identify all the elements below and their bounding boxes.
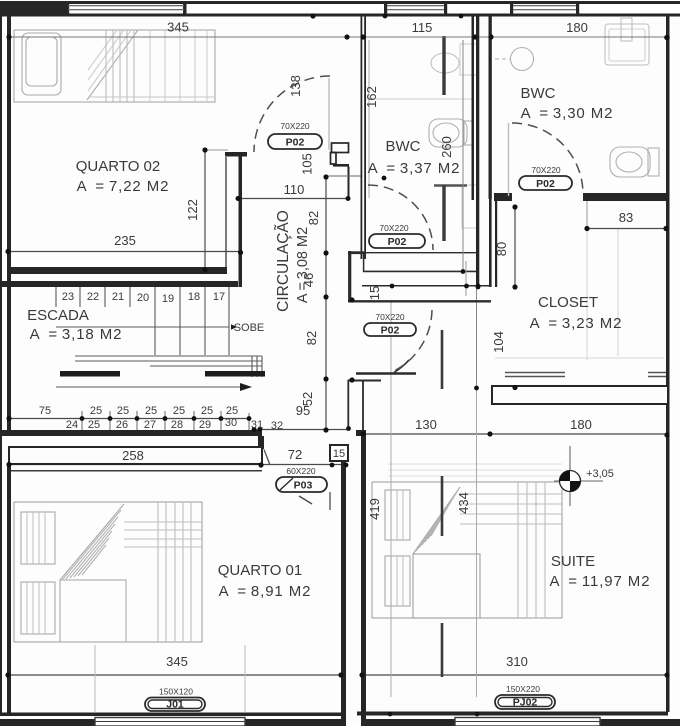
svg-text:A = 3,37 M2: A = 3,37 M2 xyxy=(368,160,461,177)
svg-text:150X220: 150X220 xyxy=(506,684,540,694)
svg-text:25: 25 xyxy=(88,419,100,431)
svg-text:75: 75 xyxy=(39,405,51,417)
svg-text:122: 122 xyxy=(185,199,200,221)
svg-text:A = 3,08 M2: A = 3,08 M2 xyxy=(295,227,311,303)
svg-text:260: 260 xyxy=(439,136,454,158)
svg-text:CIRCULAÇÃO: CIRCULAÇÃO xyxy=(275,210,292,312)
svg-text:SUITE: SUITE xyxy=(551,553,595,570)
svg-text:70X220: 70X220 xyxy=(379,223,409,233)
svg-text:QUARTO 02: QUARTO 02 xyxy=(76,158,160,175)
svg-text:70X220: 70X220 xyxy=(280,121,310,131)
svg-text:20: 20 xyxy=(137,292,149,304)
svg-text:24: 24 xyxy=(66,419,78,431)
svg-text:83: 83 xyxy=(619,210,633,225)
svg-text:A = 3,18 M2: A = 3,18 M2 xyxy=(30,326,123,343)
svg-text:95: 95 xyxy=(296,403,310,418)
svg-text:23: 23 xyxy=(62,291,74,303)
svg-text:P02: P02 xyxy=(388,236,407,248)
svg-text:A = 11,97 M2: A = 11,97 M2 xyxy=(550,573,651,590)
svg-text:A = 7,22 M2: A = 7,22 M2 xyxy=(77,178,170,195)
svg-text:J01: J01 xyxy=(166,699,184,711)
svg-text:QUARTO 01: QUARTO 01 xyxy=(218,562,302,579)
svg-text:SOBE: SOBE xyxy=(234,322,265,334)
svg-text:26: 26 xyxy=(116,419,128,431)
svg-text:25: 25 xyxy=(173,405,185,417)
svg-text:21: 21 xyxy=(112,291,124,303)
svg-text:138: 138 xyxy=(288,75,303,97)
svg-text:22: 22 xyxy=(87,291,99,303)
svg-text:18: 18 xyxy=(188,291,200,303)
svg-text:46: 46 xyxy=(301,273,316,287)
svg-text:A = 3,23 M2: A = 3,23 M2 xyxy=(530,315,623,332)
svg-text:ESCADA: ESCADA xyxy=(27,307,89,324)
svg-text:15: 15 xyxy=(367,286,382,300)
svg-text:419: 419 xyxy=(367,498,382,520)
svg-text:CLOSET: CLOSET xyxy=(538,294,598,311)
svg-text:180: 180 xyxy=(566,20,588,35)
svg-text:17: 17 xyxy=(213,291,225,303)
svg-text:72: 72 xyxy=(288,447,302,462)
svg-text:27: 27 xyxy=(144,419,156,431)
svg-text:104: 104 xyxy=(491,331,506,353)
svg-text:30: 30 xyxy=(225,417,237,429)
svg-text:345: 345 xyxy=(166,654,188,669)
svg-text:82: 82 xyxy=(304,331,319,345)
svg-text:28: 28 xyxy=(171,419,183,431)
svg-text:80: 80 xyxy=(494,242,509,256)
svg-text:105: 105 xyxy=(300,153,315,175)
svg-text:310: 310 xyxy=(506,654,528,669)
svg-text:70X220: 70X220 xyxy=(531,165,561,175)
svg-text:150X120: 150X120 xyxy=(159,687,193,697)
svg-text:115: 115 xyxy=(412,20,433,35)
svg-text:BWC: BWC xyxy=(521,85,556,102)
svg-text:+3,05: +3,05 xyxy=(586,468,614,480)
svg-text:434: 434 xyxy=(456,492,471,514)
svg-text:130: 130 xyxy=(415,417,437,432)
svg-text:25: 25 xyxy=(226,405,238,417)
svg-text:345: 345 xyxy=(167,20,189,35)
svg-text:110: 110 xyxy=(284,182,305,197)
svg-text:29: 29 xyxy=(199,419,211,431)
svg-text:70X220: 70X220 xyxy=(375,312,405,322)
svg-text:82: 82 xyxy=(306,211,321,225)
svg-text:19: 19 xyxy=(162,293,174,305)
svg-text:A = 3,30 M2: A = 3,30 M2 xyxy=(521,105,614,122)
svg-text:258: 258 xyxy=(122,448,144,463)
svg-text:P02: P02 xyxy=(381,325,400,337)
svg-text:25: 25 xyxy=(117,405,129,417)
svg-text:32: 32 xyxy=(271,420,283,432)
svg-text:31: 31 xyxy=(251,419,263,431)
svg-text:P03: P03 xyxy=(294,480,313,492)
svg-text:25: 25 xyxy=(90,405,102,417)
svg-text:P02: P02 xyxy=(536,178,555,190)
svg-text:235: 235 xyxy=(114,233,136,248)
svg-text:180: 180 xyxy=(570,417,592,432)
svg-text:25: 25 xyxy=(201,405,213,417)
svg-text:60X220: 60X220 xyxy=(286,466,316,476)
svg-text:P02: P02 xyxy=(286,137,305,149)
svg-text:A = 8,91 M2: A = 8,91 M2 xyxy=(219,583,312,600)
svg-text:15: 15 xyxy=(333,448,345,460)
svg-text:PJ02: PJ02 xyxy=(513,697,538,709)
svg-text:BWC: BWC xyxy=(386,138,421,155)
svg-text:162: 162 xyxy=(364,86,379,108)
svg-text:25: 25 xyxy=(145,405,157,417)
